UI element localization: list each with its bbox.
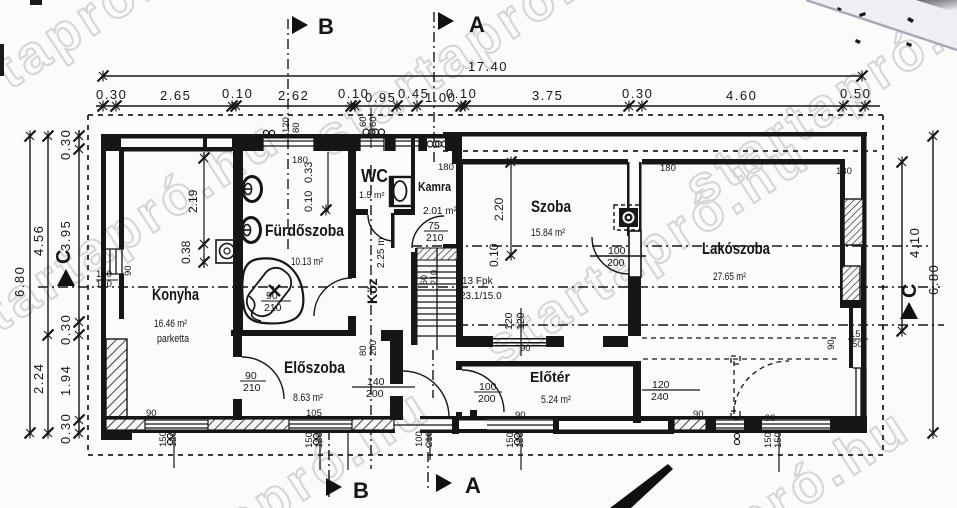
svg-text:210: 210 — [243, 382, 261, 394]
svg-text:150: 150 — [773, 432, 784, 448]
svg-text:180: 180 — [836, 166, 852, 177]
svg-text:50: 50 — [852, 339, 863, 350]
svg-text:2.25 m: 2.25 m — [376, 237, 387, 268]
svg-text:2.19: 2.19 — [186, 189, 200, 213]
svg-text:90: 90 — [146, 408, 157, 419]
svg-text:17.40: 17.40 — [468, 59, 508, 74]
svg-text:1.5 m²: 1.5 m² — [359, 190, 385, 200]
svg-text:15.84 m²: 15.84 m² — [531, 227, 565, 239]
svg-text:210: 210 — [426, 232, 444, 244]
svg-text:90: 90 — [693, 409, 704, 420]
svg-text:A: A — [465, 473, 481, 498]
svg-text:90: 90 — [123, 265, 134, 276]
svg-text:B: B — [353, 478, 369, 503]
svg-text:Szoba: Szoba — [531, 197, 571, 216]
svg-text:0.30: 0.30 — [622, 86, 653, 101]
svg-text:Fürdőszoba: Fürdőszoba — [265, 221, 344, 240]
svg-text:Előtér: Előtér — [530, 369, 570, 386]
svg-text:200: 200 — [478, 393, 496, 405]
svg-text:60: 60 — [419, 275, 429, 285]
svg-text:180: 180 — [292, 155, 308, 166]
svg-text:200: 200 — [607, 257, 625, 269]
svg-text:2.62: 2.62 — [278, 88, 309, 103]
svg-text:6.80: 6.80 — [926, 264, 941, 295]
svg-text:120: 120 — [314, 432, 325, 448]
svg-text:0.95: 0.95 — [365, 90, 396, 105]
svg-text:5.24 m²: 5.24 m² — [541, 394, 571, 406]
svg-text:2.24: 2.24 — [31, 363, 46, 394]
svg-text:140: 140 — [367, 376, 385, 388]
svg-text:0.30: 0.30 — [58, 129, 73, 160]
svg-text:B: B — [318, 14, 334, 39]
svg-text:120: 120 — [652, 379, 670, 391]
svg-text:3.75: 3.75 — [532, 88, 563, 103]
svg-text:200: 200 — [366, 388, 384, 400]
svg-text:120: 120 — [503, 312, 515, 330]
svg-text:180: 180 — [438, 162, 454, 173]
svg-text:Előszoba: Előszoba — [284, 358, 345, 377]
svg-text:200: 200 — [368, 340, 379, 356]
svg-text:0.10: 0.10 — [446, 86, 477, 101]
svg-text:0.38: 0.38 — [179, 240, 193, 264]
svg-text:0.10: 0.10 — [303, 191, 315, 212]
svg-text:4.60: 4.60 — [726, 88, 757, 103]
svg-text:WC: WC — [361, 166, 388, 186]
svg-text:105: 105 — [306, 408, 322, 419]
svg-text:4.56: 4.56 — [31, 225, 46, 256]
svg-text:120: 120 — [515, 432, 526, 448]
svg-text:100: 100 — [479, 381, 497, 393]
svg-text:0.50: 0.50 — [840, 86, 871, 101]
svg-text:90: 90 — [826, 339, 837, 350]
svg-text:210: 210 — [424, 431, 435, 447]
svg-text:60: 60 — [368, 116, 379, 127]
svg-text:4.10: 4.10 — [907, 227, 922, 258]
svg-text:75: 75 — [428, 220, 440, 232]
svg-text:parketta: parketta — [157, 333, 190, 345]
svg-text:0.10: 0.10 — [487, 243, 501, 267]
svg-text:16.46 m²: 16.46 m² — [154, 318, 187, 330]
svg-text:100: 100 — [608, 245, 626, 257]
svg-text:3.95: 3.95 — [58, 220, 73, 251]
svg-text:120: 120 — [96, 279, 112, 290]
svg-text:1.94: 1.94 — [58, 365, 73, 396]
svg-text:Konyha: Konyha — [152, 285, 199, 304]
svg-text:0.10: 0.10 — [222, 86, 253, 101]
svg-text:0.30: 0.30 — [58, 413, 73, 444]
svg-text:90: 90 — [266, 290, 278, 302]
svg-text:13 Fpk: 13 Fpk — [462, 276, 494, 287]
svg-text:0.30: 0.30 — [58, 314, 73, 345]
svg-text:8.63 m²: 8.63 m² — [293, 392, 323, 404]
svg-text:Kamra: Kamra — [418, 179, 452, 194]
svg-text:Köz: Köz — [364, 278, 380, 304]
svg-text:10.13 m²: 10.13 m² — [291, 256, 323, 268]
svg-text:A: A — [469, 12, 485, 37]
svg-text:90: 90 — [515, 410, 526, 421]
svg-text:0.30: 0.30 — [96, 87, 127, 102]
svg-text:90: 90 — [245, 370, 257, 382]
svg-text:2.65: 2.65 — [160, 88, 191, 103]
svg-text:2.01 m²: 2.01 m² — [423, 206, 458, 217]
svg-text:Lakószoba: Lakószoba — [702, 239, 770, 258]
svg-text:6.80: 6.80 — [12, 266, 27, 297]
svg-text:90: 90 — [765, 413, 776, 424]
svg-text:210: 210 — [264, 302, 282, 314]
svg-text:240: 240 — [651, 391, 669, 403]
svg-text:23.1/15.0: 23.1/15.0 — [460, 291, 502, 302]
svg-text:2.20: 2.20 — [492, 197, 506, 221]
svg-text:27.65 m²: 27.65 m² — [713, 271, 746, 283]
svg-text:180: 180 — [660, 163, 676, 174]
svg-text:80: 80 — [291, 122, 302, 133]
svg-text:210: 210 — [429, 270, 439, 285]
